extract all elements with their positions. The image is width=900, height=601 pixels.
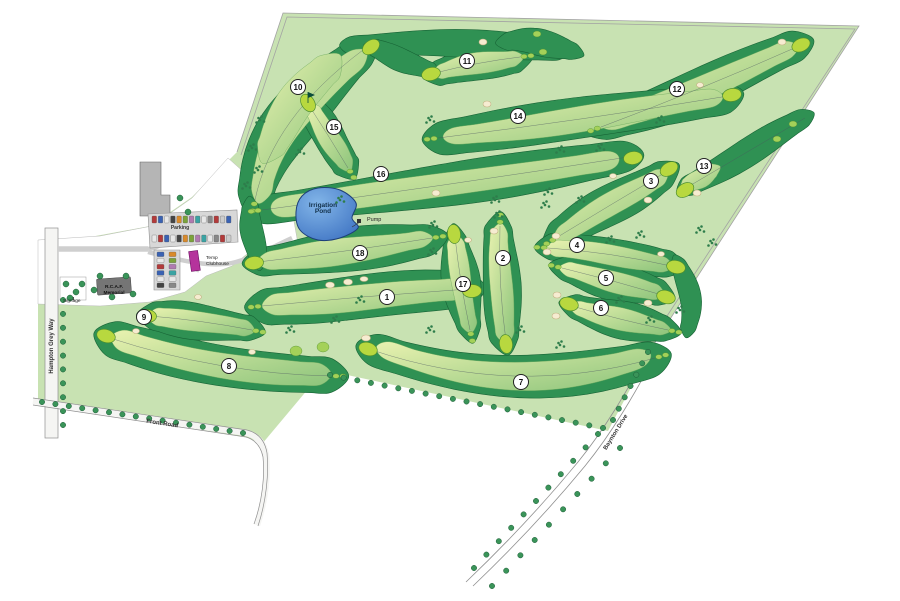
shrub: [297, 149, 300, 152]
parked-car: [157, 277, 164, 282]
shrub: [241, 187, 244, 190]
parked-car: [169, 283, 176, 288]
tree-front-road: [120, 412, 125, 417]
tree-boundary: [368, 380, 373, 385]
tree-front-road: [39, 399, 44, 404]
tree-front-road: [200, 424, 205, 429]
shrub: [287, 327, 290, 330]
tree-baynton: [496, 539, 501, 544]
shrub: [427, 253, 430, 256]
shrub: [650, 315, 653, 318]
tree-boundary: [382, 383, 387, 388]
shrub: [255, 121, 258, 124]
hole-marker-4: 4: [570, 238, 585, 253]
tree-boundary: [600, 425, 605, 430]
tree-boundary: [491, 404, 496, 409]
tee-complex: [539, 49, 547, 55]
bunker: [697, 83, 704, 88]
bunker: [249, 350, 256, 355]
hole-15-tee: [351, 175, 357, 180]
tree-front-road: [187, 422, 192, 427]
shrub: [563, 345, 566, 348]
tree-baynton: [575, 491, 580, 496]
shrub: [247, 149, 250, 152]
bunker: [326, 282, 335, 288]
parked-car: [157, 271, 164, 276]
shrub: [617, 297, 620, 300]
shrub: [425, 331, 428, 334]
hole-marker-number: 10: [294, 83, 303, 92]
label-parking: Parking: [171, 225, 189, 231]
tree: [73, 289, 79, 295]
parked-car: [226, 235, 231, 242]
tree-baynton: [546, 522, 551, 527]
tree: [130, 291, 136, 297]
parked-car: [195, 235, 200, 242]
shrub: [560, 340, 563, 343]
bunker: [658, 252, 665, 257]
hole-marker-8: 8: [222, 359, 237, 374]
tree-baynton: [583, 445, 588, 450]
shrub: [635, 236, 638, 239]
tree-boundary: [587, 423, 592, 428]
tree-baynton: [589, 476, 594, 481]
hole-marker-5: 5: [599, 271, 614, 286]
tree: [91, 287, 97, 293]
shrub: [246, 181, 249, 184]
shrub: [675, 311, 678, 314]
shrub: [498, 200, 501, 203]
tree-boundary: [573, 420, 578, 425]
tree: [63, 281, 69, 287]
bunker: [553, 292, 561, 298]
tree: [79, 281, 85, 287]
tree-baynton: [645, 349, 650, 354]
tee-complex: [317, 342, 329, 352]
tree-baynton: [509, 525, 514, 530]
tree-baynton: [617, 445, 622, 450]
shrub: [540, 206, 543, 209]
tree-baynton: [560, 507, 565, 512]
tree-hampton: [60, 339, 65, 344]
parked-car: [183, 235, 188, 242]
shrub: [695, 231, 698, 234]
hole-16-tee: [248, 209, 254, 214]
shrub: [703, 230, 706, 233]
tee-complex: [789, 121, 797, 127]
hole-14-tee: [431, 136, 437, 141]
hole-16-tee: [255, 208, 261, 213]
bunker: [362, 335, 371, 341]
bunker: [432, 190, 440, 196]
hole-18-tee: [433, 235, 439, 240]
tree-boundary: [559, 417, 564, 422]
shrub: [515, 331, 518, 334]
label-hampton-grey-way: Hampton Grey Way: [49, 318, 55, 374]
shrub: [542, 202, 545, 205]
parked-car: [169, 252, 176, 257]
hole-14-tee: [424, 137, 430, 142]
hole-marker-16: 16: [374, 167, 389, 182]
tree-baynton: [595, 431, 600, 436]
shrub: [543, 193, 546, 196]
shrub: [647, 317, 650, 320]
shrub: [295, 153, 298, 156]
hole-marker-12: 12: [670, 82, 685, 97]
tree-hampton: [60, 395, 65, 400]
hole-9-tee: [260, 330, 266, 335]
bunker: [552, 313, 560, 319]
tree-front-road: [227, 428, 232, 433]
shrub: [643, 235, 646, 238]
hole-marker-11: 11: [460, 54, 475, 69]
parked-car: [226, 216, 231, 223]
bunker: [693, 190, 701, 196]
shrub: [680, 305, 683, 308]
shrub: [580, 195, 583, 198]
shrub: [330, 321, 333, 324]
parked-car: [152, 235, 157, 242]
hole-marker-number: 11: [463, 57, 472, 66]
hole-11-tee: [528, 53, 534, 58]
bunker: [479, 39, 487, 45]
hole-marker-number: 3: [649, 177, 654, 186]
shrub: [548, 187, 551, 190]
shrub: [655, 121, 658, 124]
parked-car: [189, 235, 194, 242]
hole-12-tee: [594, 126, 600, 131]
shrub: [433, 330, 436, 333]
hole-marker-7: 7: [514, 375, 529, 390]
shrub: [433, 220, 436, 223]
parked-car: [164, 216, 169, 223]
tree-hampton: [60, 367, 65, 372]
shrub: [605, 241, 608, 244]
shrub: [517, 327, 520, 330]
hole-marker-10: 10: [291, 80, 306, 95]
tee-complex: [290, 346, 302, 356]
shrub: [620, 295, 623, 298]
bunker: [360, 277, 368, 282]
tree-baynton: [603, 461, 608, 466]
parked-car: [164, 235, 169, 242]
parked-car: [208, 235, 213, 242]
shrub: [249, 145, 252, 148]
parked-car: [158, 216, 163, 223]
bunker: [133, 329, 140, 334]
shrub: [560, 145, 563, 148]
shrub: [427, 327, 430, 330]
tree-baynton: [518, 553, 523, 558]
shrub: [551, 192, 554, 195]
parked-car: [183, 216, 188, 223]
hole-marker-number: 8: [227, 362, 232, 371]
hole-marker-18: 18: [353, 246, 368, 261]
tree-boundary: [355, 378, 360, 383]
shrub: [495, 212, 498, 215]
tree: [177, 195, 183, 201]
hole-marker-6: 6: [594, 301, 609, 316]
shrub: [498, 210, 501, 213]
shrub: [545, 200, 548, 203]
shrub: [433, 120, 436, 123]
shrub: [427, 117, 430, 120]
parked-car: [157, 252, 164, 257]
shrub: [430, 115, 433, 118]
hole-marker-1: 1: [380, 290, 395, 305]
tree-baynton: [634, 372, 639, 377]
pump-station: [357, 219, 361, 223]
tree-front-road: [53, 401, 58, 406]
tree-boundary: [409, 388, 414, 393]
tree-boundary: [396, 386, 401, 391]
shrub: [252, 143, 255, 146]
shrub: [249, 186, 252, 189]
hole-marker-number: 17: [459, 280, 468, 289]
tree-baynton: [471, 565, 476, 570]
parked-car: [195, 216, 200, 223]
shrub: [615, 301, 618, 304]
shrub: [583, 200, 586, 203]
tee-complex: [773, 136, 781, 142]
shrub: [492, 197, 495, 200]
hole-18-tee: [440, 234, 446, 239]
shrub: [300, 147, 303, 150]
parked-car: [171, 235, 176, 242]
shrub: [261, 170, 264, 173]
tree-baynton: [640, 361, 645, 366]
hole-marker-number: 9: [142, 313, 147, 322]
hole-marker-number: 15: [330, 123, 339, 132]
parked-car: [169, 264, 176, 269]
shrub: [603, 148, 606, 151]
tree-boundary: [505, 407, 510, 412]
shrub: [563, 150, 566, 153]
shrub: [495, 195, 498, 198]
tree-front-road: [80, 406, 85, 411]
parking-lot: [148, 210, 238, 248]
bunker: [195, 295, 202, 300]
parked-car: [202, 235, 207, 242]
shrub: [335, 315, 338, 318]
tree-hampton: [60, 353, 65, 358]
shrub: [607, 237, 610, 240]
hole-marker-number: 4: [575, 241, 580, 250]
label-signage: Signage: [63, 298, 81, 304]
hole-9-tee: [253, 329, 259, 334]
shrub: [613, 240, 616, 243]
shrub: [677, 307, 680, 310]
hole-marker-17: 17: [456, 277, 471, 292]
shrub: [657, 117, 660, 120]
tree-baynton: [484, 552, 489, 557]
tree-front-road: [133, 414, 138, 419]
hole-marker-2: 2: [496, 251, 511, 266]
bunker: [778, 39, 786, 45]
hole-marker-number: 18: [356, 249, 365, 258]
parked-car: [177, 216, 182, 223]
shrub: [715, 243, 718, 246]
shrub: [303, 152, 306, 155]
tree-front-road: [214, 426, 219, 431]
tree-baynton: [616, 406, 621, 411]
tree-boundary: [423, 391, 428, 396]
hole-marker-15: 15: [327, 120, 342, 135]
parked-car: [157, 258, 164, 263]
shrub: [597, 145, 600, 148]
maintenance-building: [140, 162, 170, 216]
tree: [185, 209, 191, 215]
label-pump: Pump: [367, 217, 381, 223]
parked-car: [152, 216, 157, 223]
shrub: [663, 120, 666, 123]
tree-baynton: [532, 537, 537, 542]
shrub: [555, 346, 558, 349]
bunker: [465, 238, 472, 243]
parked-car: [220, 235, 225, 242]
tree-hampton: [60, 311, 65, 316]
shrub: [653, 320, 656, 323]
parked-car: [214, 216, 219, 223]
shrub: [355, 301, 358, 304]
tree-boundary: [341, 375, 346, 380]
tree-hampton: [60, 381, 65, 386]
shrub: [363, 300, 366, 303]
shrub: [332, 317, 335, 320]
tree-baynton: [533, 498, 538, 503]
parked-car: [169, 271, 176, 276]
tree-baynton: [558, 472, 563, 477]
tree-boundary: [327, 372, 332, 377]
tree-boundary: [437, 394, 442, 399]
shrub: [428, 226, 431, 229]
parked-car: [220, 216, 225, 223]
bunker: [490, 228, 498, 234]
shrub: [707, 244, 710, 247]
tree-boundary: [464, 399, 469, 404]
hole-11-tee: [521, 54, 527, 59]
shrub: [623, 300, 626, 303]
hole-1-tee: [248, 305, 254, 310]
tree-boundary: [532, 412, 537, 417]
tree-boundary: [518, 409, 523, 414]
shrub: [595, 149, 598, 152]
hole-2-tee: [497, 220, 503, 225]
tree-boundary: [546, 415, 551, 420]
shrub: [430, 222, 433, 225]
hole-17-tee: [468, 332, 474, 337]
tree-boundary: [477, 401, 482, 406]
hole-12-tee: [588, 129, 594, 134]
hole-marker-3: 3: [644, 174, 659, 189]
hole-10-tee: [251, 202, 257, 207]
hole-15-tee: [347, 169, 353, 174]
shrub: [257, 117, 260, 120]
shrub: [640, 230, 643, 233]
hole-8-tee: [333, 374, 339, 379]
tree-hampton: [60, 325, 65, 330]
shrub: [360, 295, 363, 298]
hole-marker-number: 6: [599, 304, 604, 313]
shrub: [555, 151, 558, 154]
shrub: [490, 201, 493, 204]
shrub: [357, 297, 360, 300]
shrub: [255, 167, 258, 170]
shrub: [432, 247, 435, 250]
tree-front-road: [93, 408, 98, 413]
parked-car: [158, 235, 163, 242]
parked-car: [214, 235, 219, 242]
tree-hampton: [60, 408, 65, 413]
shrub: [429, 249, 432, 252]
hole-marker-number: 13: [700, 162, 709, 171]
shrub: [548, 205, 551, 208]
tree: [97, 273, 103, 279]
shrub: [340, 195, 343, 198]
parked-car: [157, 283, 164, 288]
bunker: [543, 249, 551, 255]
parked-car: [189, 216, 194, 223]
tree-baynton: [489, 583, 494, 588]
shrub: [709, 240, 712, 243]
shrub: [337, 197, 340, 200]
tree-front-road: [240, 430, 245, 435]
hole-marker-14: 14: [511, 109, 526, 124]
shrub: [263, 120, 266, 123]
course-map-svg: IrrigationPondPumpParkingTempClubhouseR.…: [0, 0, 900, 601]
hole-4-tee: [534, 245, 540, 250]
parked-car: [177, 235, 182, 242]
tree-baynton: [571, 458, 576, 463]
shrub: [338, 320, 341, 323]
hole-marker-number: 5: [604, 274, 609, 283]
bunker: [644, 300, 652, 306]
shrub: [430, 325, 433, 328]
shrub: [293, 330, 296, 333]
shrub: [610, 235, 613, 238]
bunker: [610, 174, 617, 179]
tee-complex: [533, 31, 541, 37]
hole-7-tee: [656, 355, 662, 360]
parked-car: [208, 216, 213, 223]
hole-marker-number: 14: [514, 112, 523, 121]
shrub: [435, 252, 438, 255]
shrub: [255, 148, 258, 151]
shrub: [575, 201, 578, 204]
shrub: [290, 325, 293, 328]
bunker: [344, 279, 353, 285]
shrub: [577, 197, 580, 200]
tree-baynton: [628, 383, 633, 388]
hole-marker-number: 12: [673, 85, 682, 94]
shrub: [258, 165, 261, 168]
shrub: [645, 321, 648, 324]
shrub: [520, 325, 523, 328]
shrub: [600, 143, 603, 146]
tree: [123, 273, 129, 279]
hole-marker-number: 7: [519, 378, 524, 387]
hole-5-tee: [555, 265, 561, 270]
shrub: [343, 200, 346, 203]
tree-front-road: [106, 410, 111, 415]
shrub: [683, 310, 686, 313]
tree-hampton: [60, 422, 65, 427]
shrub: [493, 216, 496, 219]
hole-marker-9: 9: [137, 310, 152, 325]
shrub: [545, 189, 548, 192]
hole-marker-13: 13: [697, 159, 712, 174]
parked-car: [171, 216, 176, 223]
